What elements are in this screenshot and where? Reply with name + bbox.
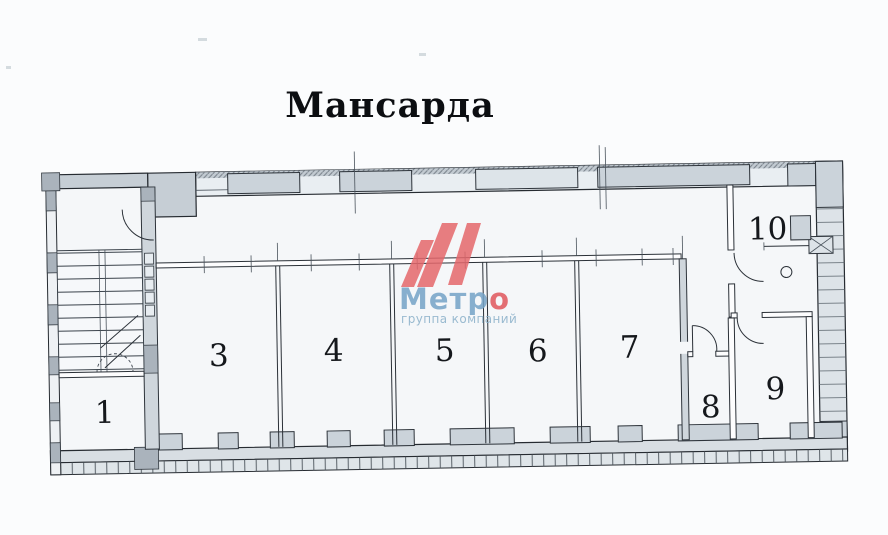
room-8-top-wall bbox=[688, 352, 693, 357]
wall-pier bbox=[340, 171, 412, 192]
wall-pier bbox=[384, 430, 414, 447]
stairwell-top-wall bbox=[46, 173, 148, 189]
wall-pier bbox=[790, 422, 842, 439]
wall-pier bbox=[327, 431, 350, 447]
room-label-10: 10 bbox=[748, 211, 788, 248]
staircase bbox=[57, 249, 144, 374]
room-label-4: 4 bbox=[324, 333, 344, 369]
room-label-8: 8 bbox=[701, 389, 721, 425]
page-title: Мансарда bbox=[285, 85, 495, 126]
room-label-1: 1 bbox=[95, 395, 115, 431]
corner-block bbox=[42, 173, 60, 191]
wall-pier bbox=[678, 424, 758, 441]
room-label-7: 7 bbox=[620, 330, 640, 366]
watermark-company-name: Метро bbox=[399, 282, 510, 316]
wall-pier bbox=[598, 165, 750, 188]
wall-pier bbox=[228, 172, 300, 193]
scan-noise bbox=[6, 38, 426, 69]
room-10-west-wall bbox=[727, 185, 734, 250]
room-label-5: 5 bbox=[435, 333, 455, 369]
cabinet-box bbox=[790, 216, 810, 240]
room-label-9: 9 bbox=[765, 371, 785, 407]
wall-pier bbox=[218, 433, 238, 449]
wall-pier bbox=[450, 428, 514, 445]
room-9-top-wall bbox=[731, 313, 737, 318]
room-label-3: 3 bbox=[209, 338, 229, 374]
wall-junction-block bbox=[134, 447, 158, 469]
wall-pier bbox=[476, 168, 578, 190]
room-label-6: 6 bbox=[528, 333, 548, 369]
wall-pier bbox=[618, 426, 642, 442]
room-1-top-wall bbox=[59, 371, 144, 377]
watermark-subtitle: группа компаний bbox=[401, 312, 517, 326]
floor-plan-scan: Мансарда bbox=[0, 0, 888, 535]
wall-pier bbox=[788, 163, 816, 185]
ventilation-shaft bbox=[809, 236, 833, 253]
wall-pier bbox=[550, 426, 590, 443]
